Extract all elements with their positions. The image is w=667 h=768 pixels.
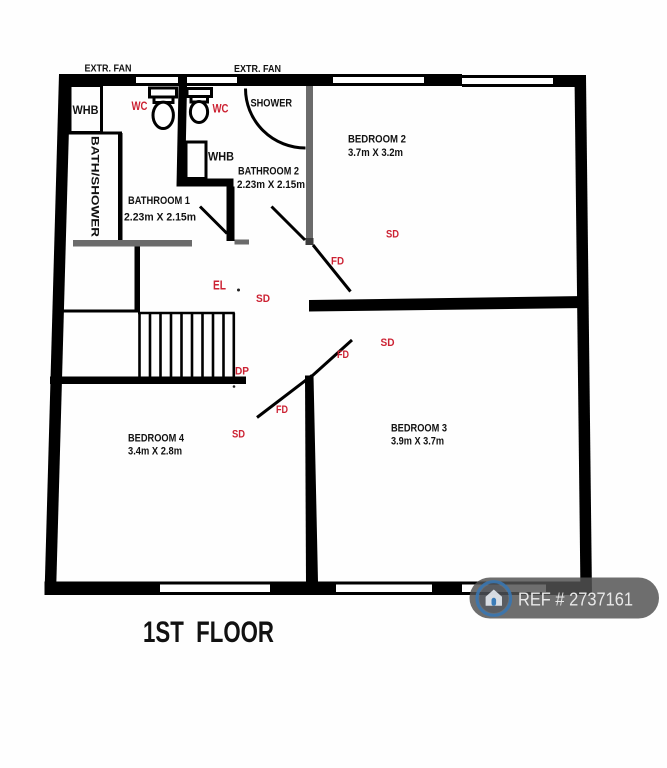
svg-text:FD: FD	[331, 256, 344, 268]
svg-text:3.9m X 3.7m: 3.9m X 3.7m	[391, 436, 444, 448]
svg-text:BEDROOM 2: BEDROOM 2	[348, 134, 406, 146]
svg-text:EXTR. FAN: EXTR. FAN	[234, 64, 281, 75]
svg-text:BATH/SHOWER: BATH/SHOWER	[89, 136, 101, 237]
svg-text:3.4m X 2.8m: 3.4m X 2.8m	[128, 446, 182, 458]
svg-text:WC: WC	[213, 104, 229, 116]
svg-text:1ST FLOOR: 1ST FLOOR	[143, 616, 274, 649]
svg-text:REF # 2737161: REF # 2737161	[518, 589, 633, 610]
svg-text:SD: SD	[381, 337, 395, 349]
svg-text:3.7m X 3.2m: 3.7m X 3.2m	[348, 147, 403, 159]
svg-text:SHOWER: SHOWER	[251, 98, 293, 110]
svg-text:FD: FD	[337, 349, 349, 361]
svg-text:WC: WC	[132, 101, 148, 113]
svg-text:BEDROOM 4: BEDROOM 4	[128, 433, 185, 445]
svg-text:SD: SD	[386, 229, 399, 241]
svg-text:EXTR. FAN: EXTR. FAN	[85, 64, 132, 75]
svg-text:WHB: WHB	[73, 105, 99, 117]
svg-text:BATHROOM 1: BATHROOM 1	[128, 195, 190, 207]
svg-text:FD: FD	[276, 404, 288, 416]
svg-text:EL: EL	[213, 278, 226, 293]
svg-text:SD: SD	[232, 429, 245, 441]
svg-text:BEDROOM 3: BEDROOM 3	[391, 423, 447, 435]
svg-text:WHB: WHB	[208, 152, 234, 164]
svg-text:BATHROOM 2: BATHROOM 2	[238, 166, 299, 178]
svg-text:2.23m X 2.15m: 2.23m X 2.15m	[237, 179, 305, 191]
svg-text:DP: DP	[235, 366, 249, 378]
svg-text:SD: SD	[256, 293, 270, 305]
svg-text:2.23m X 2.15m: 2.23m X 2.15m	[124, 212, 196, 224]
